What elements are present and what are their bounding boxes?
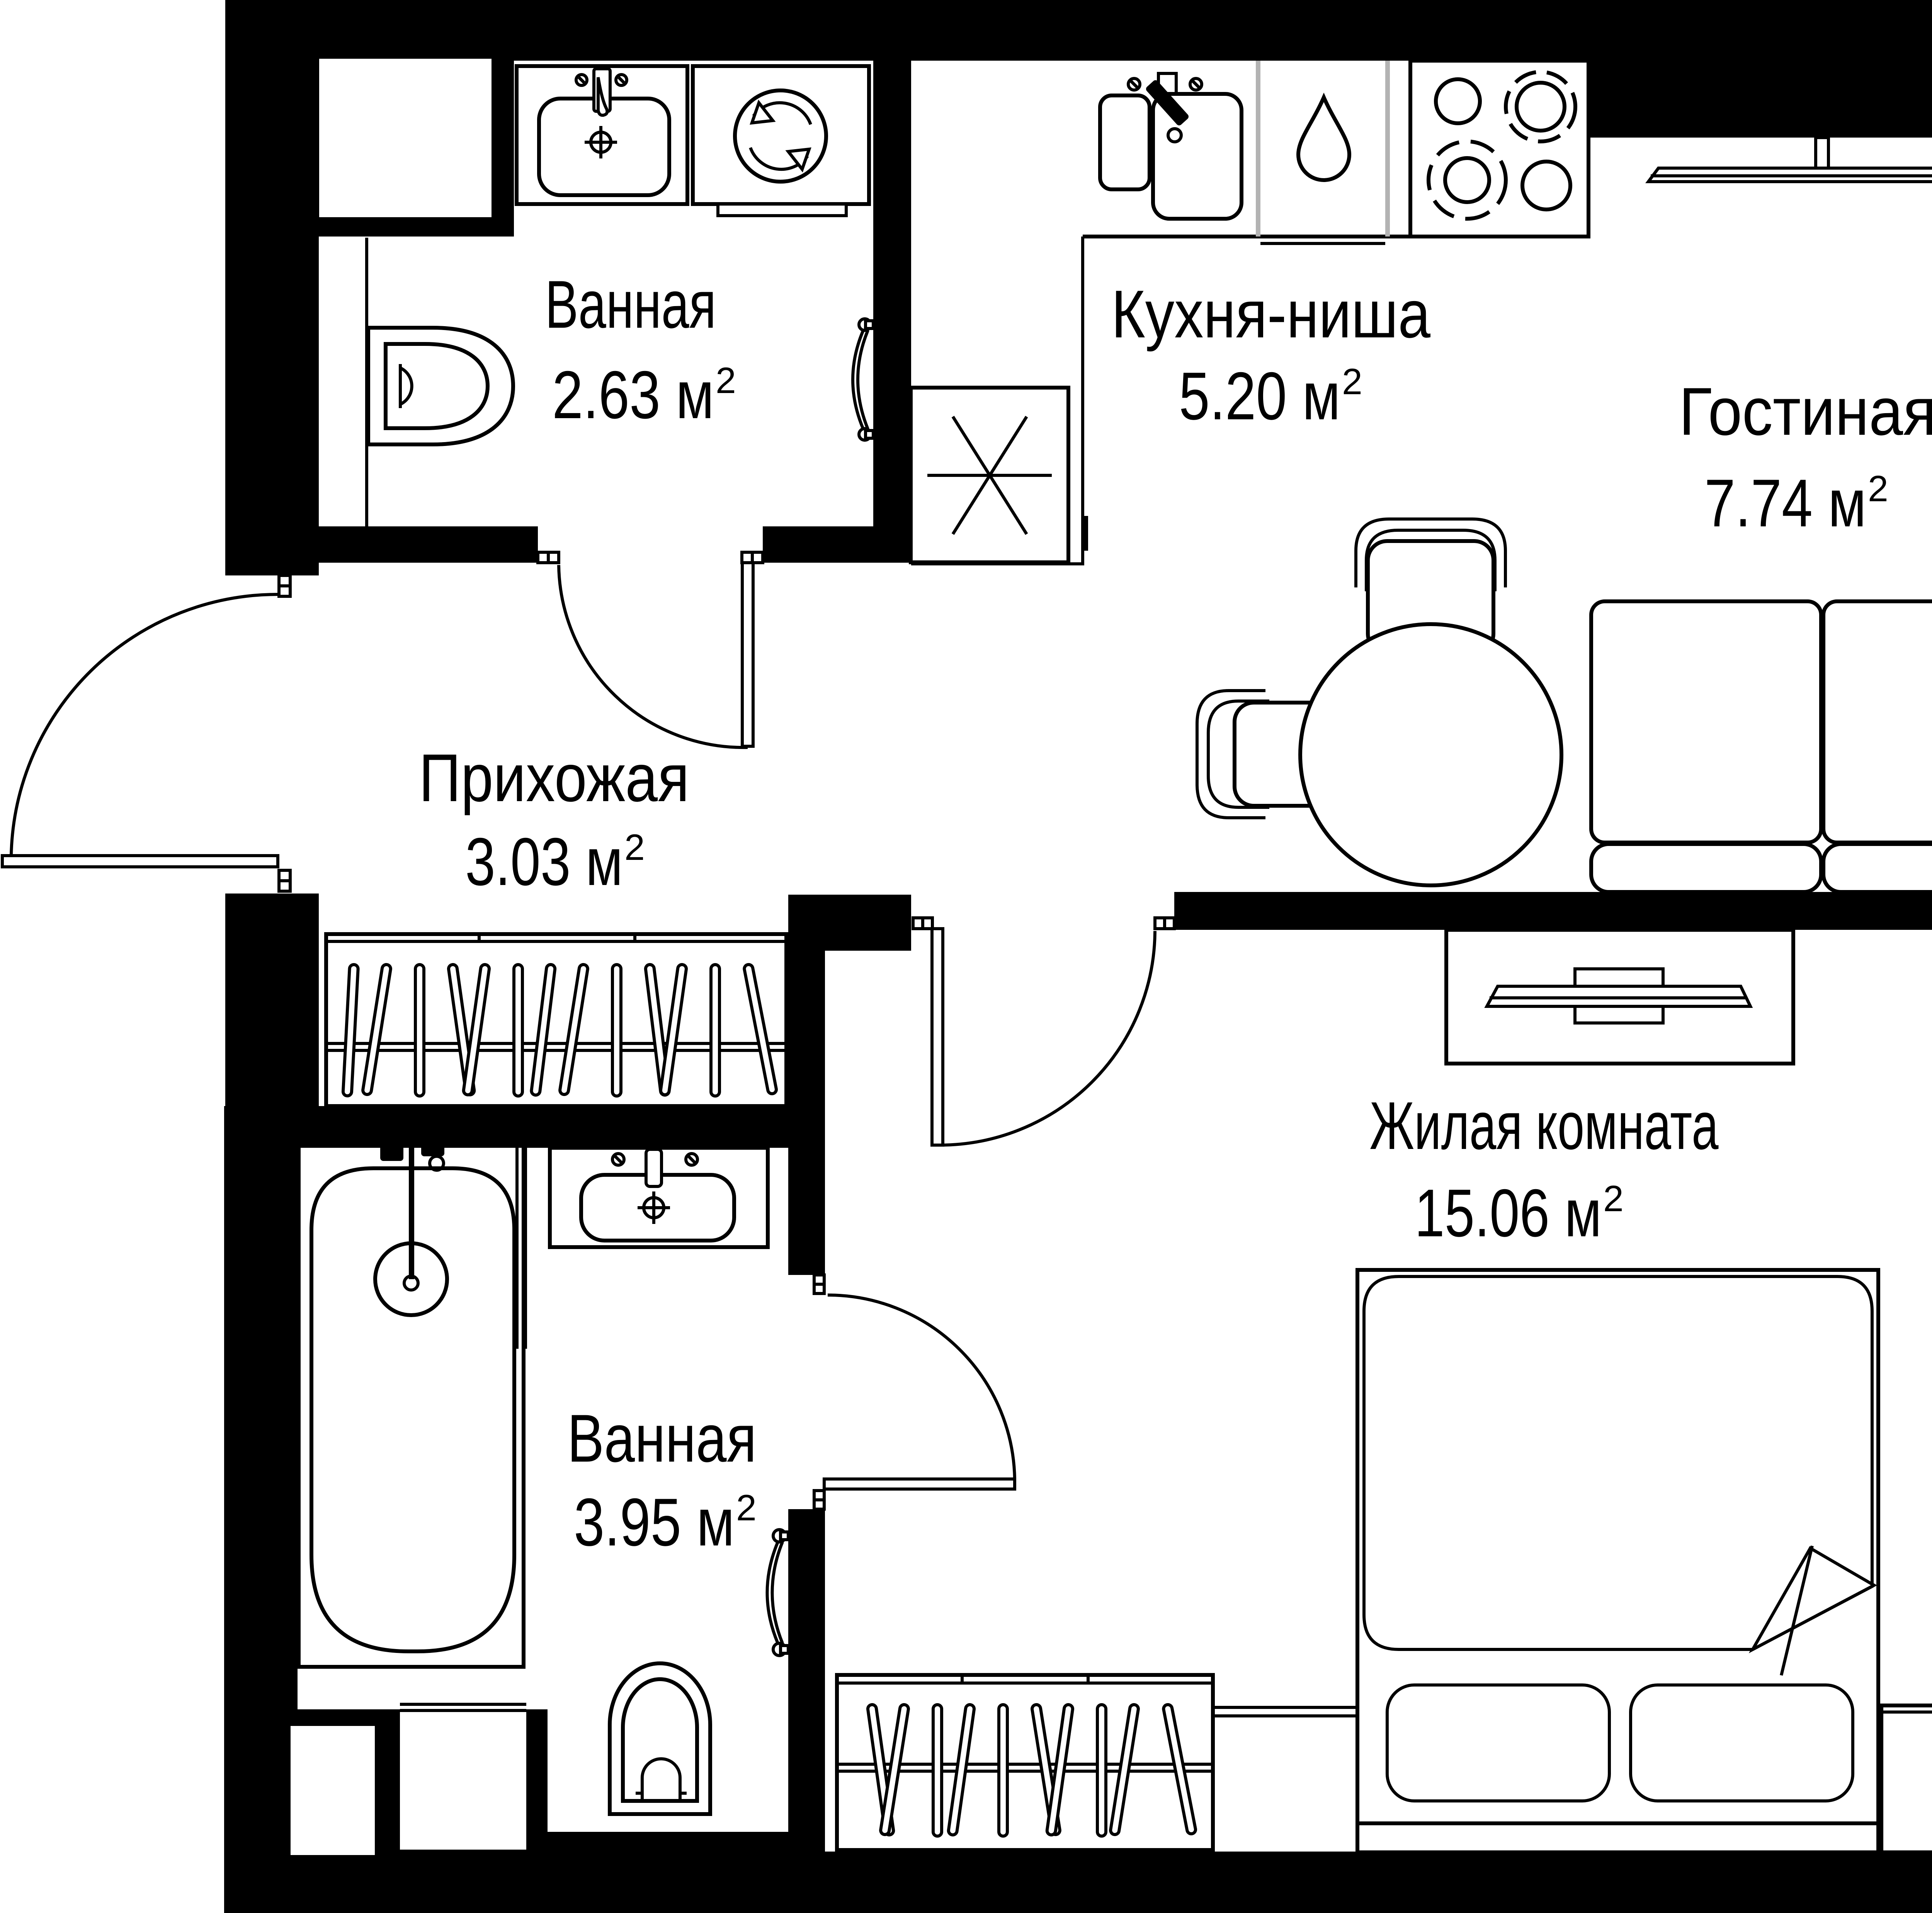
svg-text:Жилая комната: Жилая комната xyxy=(1370,1088,1719,1164)
svg-text:3.03 м: 3.03 м xyxy=(465,824,623,900)
svg-text:15.06 м: 15.06 м xyxy=(1415,1176,1602,1251)
svg-text:2: 2 xyxy=(1603,1178,1624,1219)
svg-text:2: 2 xyxy=(736,1488,757,1528)
svg-text:Кухня-ниша: Кухня-ниша xyxy=(1111,277,1431,352)
svg-text:2: 2 xyxy=(624,827,645,868)
svg-text:7.74 м: 7.74 м xyxy=(1704,466,1866,541)
svg-text:Ванная: Ванная xyxy=(567,1401,757,1476)
svg-text:Прихожая: Прихожая xyxy=(419,740,689,816)
svg-text:Гостиная: Гостиная xyxy=(1679,374,1932,449)
svg-text:2.63 м: 2.63 м xyxy=(552,357,714,433)
svg-text:2: 2 xyxy=(1342,361,1362,402)
svg-text:3.95 м: 3.95 м xyxy=(574,1485,735,1560)
svg-text:2: 2 xyxy=(716,360,736,401)
svg-text:2: 2 xyxy=(1868,468,1888,509)
svg-text:Ванная: Ванная xyxy=(545,267,716,342)
svg-text:5.20 м: 5.20 м xyxy=(1179,359,1340,434)
